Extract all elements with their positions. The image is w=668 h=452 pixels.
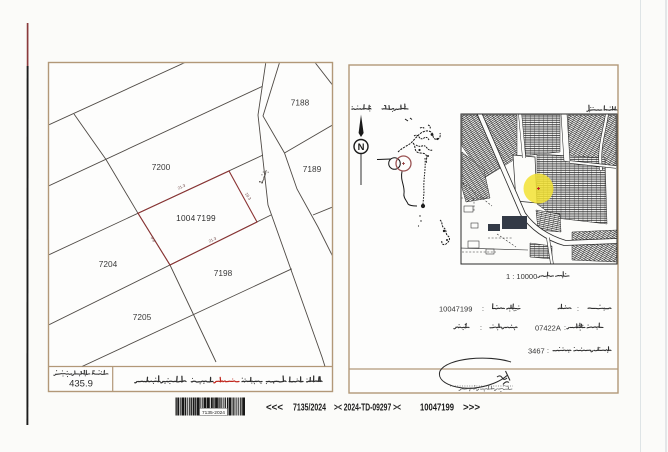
svg-text:>< 2024-TD-09297 ><: >< 2024-TD-09297 >< (334, 403, 401, 414)
svg-text:7204: 7204 (99, 259, 118, 269)
svg-text:7205: 7205 (133, 312, 152, 322)
svg-text:10047199: 10047199 (439, 305, 472, 314)
svg-text:7189: 7189 (303, 164, 322, 174)
svg-text:7135/2024: 7135/2024 (293, 403, 326, 414)
svg-text:10047199: 10047199 (176, 213, 216, 223)
svg-text::: : (547, 348, 549, 355)
svg-text::: : (482, 306, 484, 313)
svg-text:10047199: 10047199 (420, 403, 454, 414)
svg-text:3467: 3467 (528, 347, 545, 356)
svg-text:435.9: 435.9 (69, 379, 93, 390)
svg-text:1 : 10000: 1 : 10000 (506, 272, 537, 281)
svg-text:7200: 7200 (152, 162, 171, 172)
svg-text:07422A: 07422A (535, 324, 561, 333)
svg-text::: : (577, 306, 579, 313)
svg-text:>>>: >>> (463, 403, 480, 414)
svg-text:7135-2024: 7135-2024 (202, 410, 225, 416)
svg-text:<<<: <<< (266, 403, 283, 414)
svg-text::: : (564, 325, 566, 332)
svg-text:7188: 7188 (291, 98, 310, 108)
svg-text:7198: 7198 (214, 268, 233, 278)
svg-text:N: N (358, 142, 365, 153)
svg-text::: : (480, 325, 482, 332)
